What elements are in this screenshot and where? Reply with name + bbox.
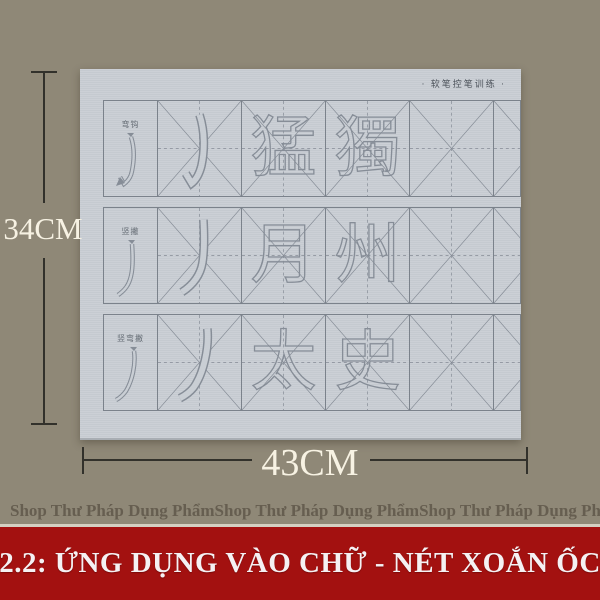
grid-row-3: 竖弯撇 [103,314,521,411]
stroke-label-cell-2: 竖撇 [104,208,158,303]
rice-grid-guides [494,315,521,410]
caption-banner: 2.2: ỨNG DỤNG VÀO CHỮ - NÉT XOẮN ỐC [0,527,600,600]
rice-grid-guides [410,315,493,410]
grid-cell: 月 [242,208,326,303]
grid-cell: 史 [326,315,410,410]
practice-sheet: · 软笔控笔训练 · 弯钩 [80,69,521,440]
grid-cell [158,101,242,196]
grid-cell [410,101,494,196]
grid-cell [410,315,494,410]
height-dim-tick-bottom [31,423,57,425]
grid-cell: 獨 [326,101,410,196]
mini-stroke-vertical-sweep-icon [104,238,158,300]
rice-grid-guides [494,208,521,303]
height-dim-line-upper [43,73,45,203]
practice-character: 州 [326,208,409,303]
mini-stroke-curved-hook-icon [104,131,158,193]
grid-cell [158,208,242,303]
width-dim-line-left [84,459,252,461]
stroke-label-cell-1: 弯钩 [104,101,158,196]
width-dim-label: 43CM [254,441,366,485]
shop-watermark: Shop Thư Pháp Dụng Phẩm [215,501,420,521]
sheet-brand-text: · 软笔控笔训练 · [422,77,507,90]
watermark-strip: Shop Thư Pháp Dụng Phẩm Shop Thư Pháp Dụ… [0,497,600,524]
practice-character: 獨 [326,101,409,196]
practice-character: 猛 [242,101,325,196]
shop-watermark: Shop Thư Pháp Dụng Phẩm [10,501,215,521]
grid-cell-clipped [494,101,521,196]
stroke-example-vertical-sweep-icon [158,208,241,303]
grid-cell: 州 [326,208,410,303]
practice-grid: 弯钩 [103,100,521,421]
grid-cell [158,315,242,410]
grid-cell: 太 [242,315,326,410]
caption-text: 2.2: ỨNG DỤNG VÀO CHỮ - NÉT XOẮN ỐC [0,547,600,580]
width-dim-line-right [370,459,526,461]
practice-character: 月 [242,208,325,303]
height-dim-label: 34CM [0,211,86,247]
rice-grid-guides [410,208,493,303]
product-photo: · 软笔控笔训练 · 弯钩 [0,0,600,600]
rice-grid-guides [410,101,493,196]
stroke-name-1: 弯钩 [104,119,157,130]
stroke-name-2: 竖撇 [104,226,157,237]
height-dim-line-lower [43,258,45,423]
practice-character: 史 [326,315,409,410]
grid-cell [410,208,494,303]
stroke-name-3: 竖弯撇 [104,333,157,344]
grid-row-1: 弯钩 [103,100,521,197]
mini-stroke-curved-sweep-icon [104,345,158,407]
width-dim-tick-right [526,447,528,474]
grid-cell-clipped [494,315,521,410]
stroke-label-cell-3: 竖弯撇 [104,315,158,410]
grid-cell-clipped [494,208,521,303]
shop-watermark: Shop Thư Pháp Dụng Phẩm [419,501,600,521]
practice-character: 太 [242,315,325,410]
rice-grid-guides [494,101,521,196]
grid-cell: 猛 [242,101,326,196]
stroke-example-curved-hook-icon [158,101,241,196]
grid-row-2: 竖撇 [103,207,521,304]
stroke-example-curved-sweep-icon [158,315,241,410]
